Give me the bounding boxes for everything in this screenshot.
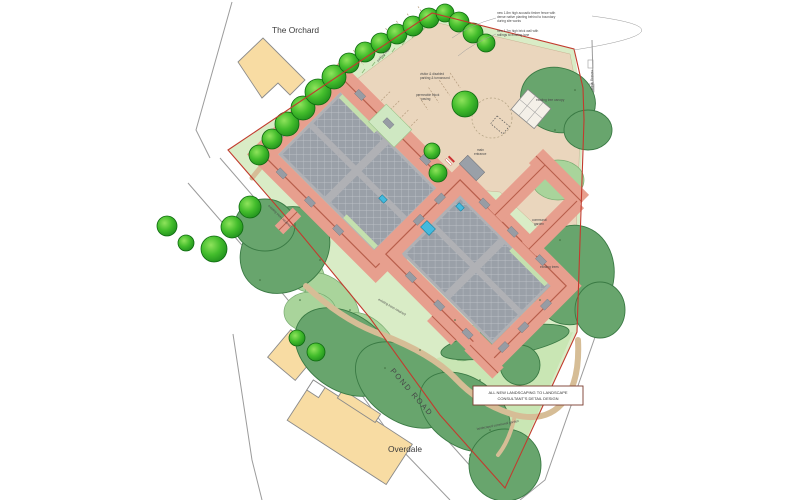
property-line-bottom-left (233, 334, 262, 500)
tip-tree (469, 429, 541, 500)
annotation-trees: existing trees (540, 265, 559, 269)
annotation-canopy: existing tree canopy (536, 98, 565, 102)
annotation-paving: paving (421, 97, 431, 101)
parking-tree (452, 91, 478, 117)
overdale-label: Overdale (388, 444, 422, 454)
note-line-2: CONSULTANT'S DETAIL DESIGN (497, 396, 558, 401)
site-plan-drawing: ALL NEW LANDSCAPING TO LANDSCAPE CONSULT… (0, 0, 795, 500)
entrance-tree-2 (429, 164, 447, 182)
note-line-1: ALL NEW LANDSCAPING TO LANDSCAPE (488, 390, 567, 395)
annotation-hedge: existing hedge (590, 70, 594, 91)
landscaping-note-box: ALL NEW LANDSCAPING TO LANDSCAPE CONSULT… (473, 386, 583, 405)
site-plan-page: ALL NEW LANDSCAPING TO LANDSCAPE CONSULT… (0, 0, 795, 500)
orchard-house (238, 38, 305, 98)
annotation-note: railings to existing lane (497, 33, 529, 37)
orchard-label: The Orchard (272, 25, 319, 35)
annotation-note: during site works (497, 19, 521, 23)
entrance-tree-1 (424, 143, 440, 159)
annotation-entrance: entrance (474, 152, 487, 156)
annotation-visitor: parking & turnaround (420, 76, 450, 80)
annotation-communal: garden (534, 222, 544, 226)
